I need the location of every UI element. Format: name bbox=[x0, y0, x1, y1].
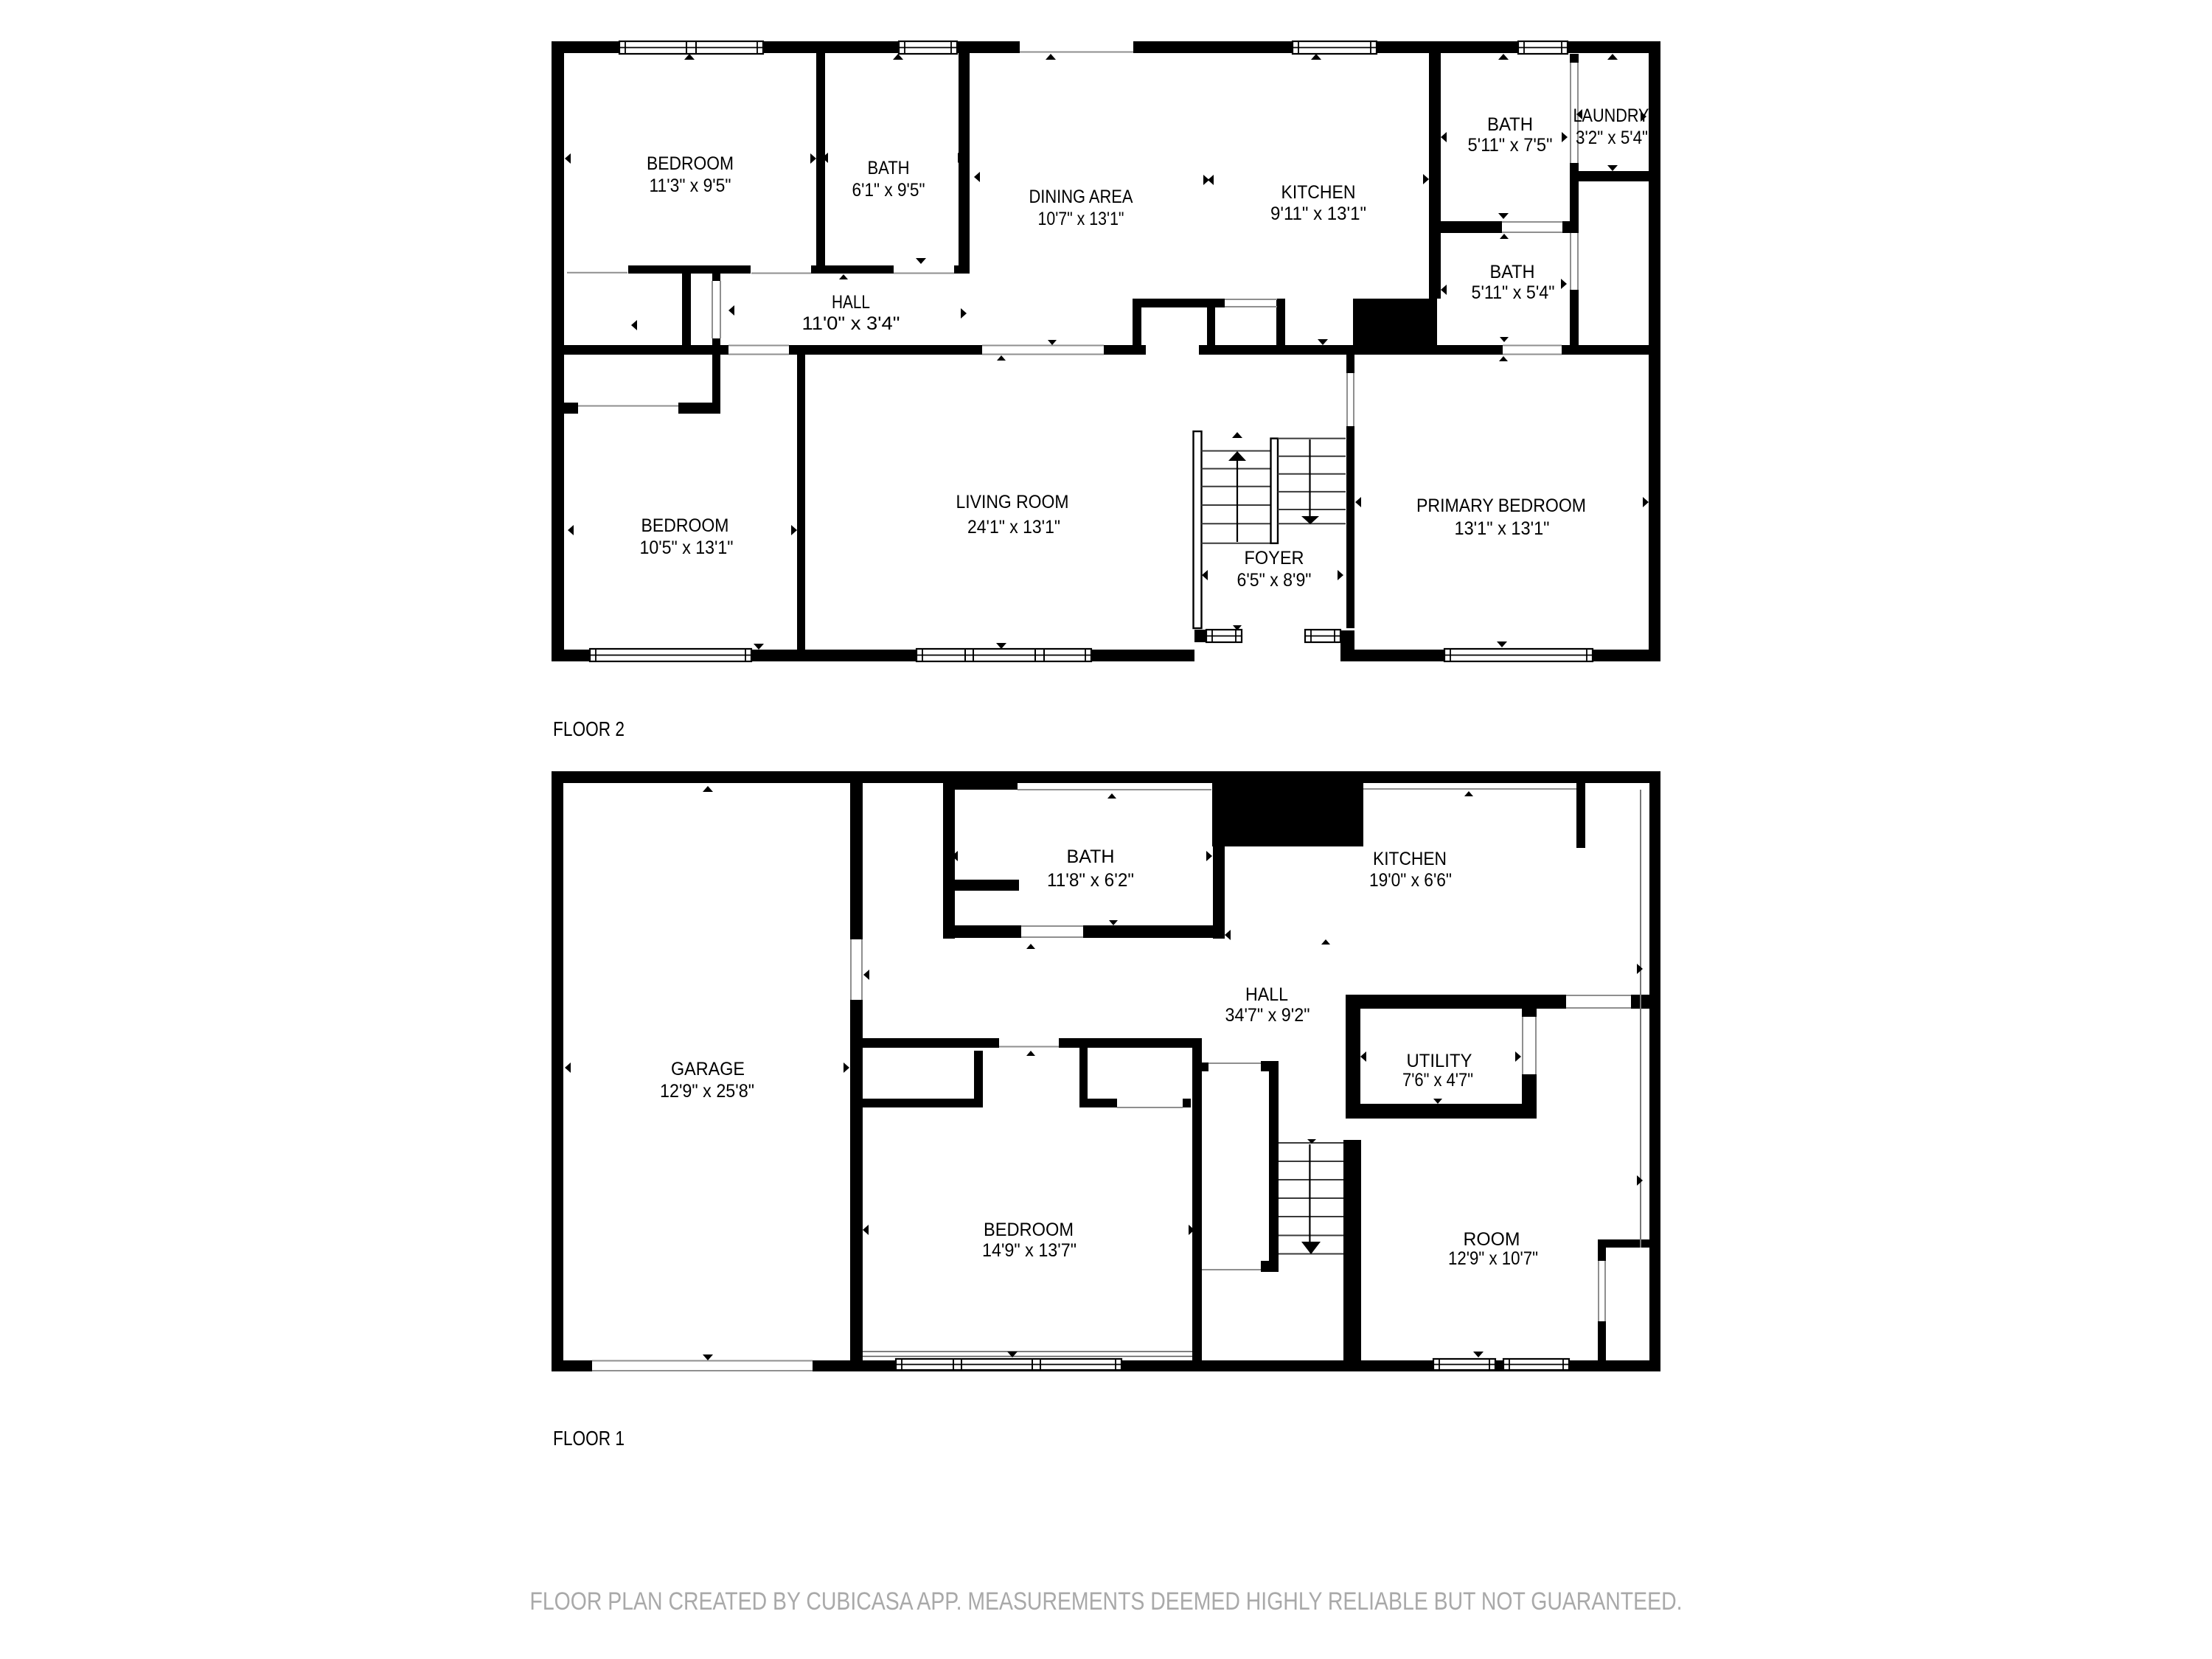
svg-text:5'11" x 7'5": 5'11" x 7'5" bbox=[1468, 135, 1553, 156]
svg-text:BATH: BATH bbox=[1067, 846, 1115, 867]
svg-text:PRIMARY BEDROOM: PRIMARY BEDROOM bbox=[1416, 495, 1586, 516]
svg-text:HALL: HALL bbox=[1245, 984, 1288, 1005]
svg-text:UTILITY: UTILITY bbox=[1407, 1051, 1472, 1071]
svg-text:ROOM: ROOM bbox=[1464, 1229, 1520, 1250]
svg-text:FLOOR PLAN CREATED BY CUBICASA: FLOOR PLAN CREATED BY CUBICASA APP. MEAS… bbox=[530, 1587, 1683, 1615]
svg-text:3'2" x 5'4": 3'2" x 5'4" bbox=[1576, 128, 1648, 148]
svg-text:13'1" x 13'1": 13'1" x 13'1" bbox=[1455, 518, 1550, 539]
svg-text:11'8" x 6'2": 11'8" x 6'2" bbox=[1047, 870, 1134, 891]
svg-text:11'3" x 9'5": 11'3" x 9'5" bbox=[650, 175, 731, 196]
svg-text:6'5" x 8'9": 6'5" x 8'9" bbox=[1237, 570, 1312, 591]
svg-text:7'6" x 4'7": 7'6" x 4'7" bbox=[1402, 1070, 1473, 1091]
svg-text:LAUNDRY: LAUNDRY bbox=[1573, 105, 1649, 126]
svg-text:24'1" x 13'1": 24'1" x 13'1" bbox=[967, 517, 1060, 538]
svg-text:10'5" x 13'1": 10'5" x 13'1" bbox=[640, 538, 734, 558]
svg-text:FLOOR 2: FLOOR 2 bbox=[553, 717, 625, 740]
svg-text:GARAGE: GARAGE bbox=[671, 1059, 745, 1079]
svg-text:BEDROOM: BEDROOM bbox=[984, 1220, 1074, 1240]
svg-text:BATH: BATH bbox=[868, 158, 910, 178]
svg-text:19'0" x 6'6": 19'0" x 6'6" bbox=[1369, 870, 1452, 891]
svg-text:6'1" x 9'5": 6'1" x 9'5" bbox=[852, 180, 925, 201]
svg-text:BEDROOM: BEDROOM bbox=[647, 153, 734, 174]
svg-text:BATH: BATH bbox=[1490, 262, 1535, 282]
svg-text:10'7" x 13'1": 10'7" x 13'1" bbox=[1038, 209, 1124, 229]
svg-text:DINING AREA: DINING AREA bbox=[1029, 187, 1133, 207]
svg-text:34'7" x 9'2": 34'7" x 9'2" bbox=[1225, 1005, 1310, 1026]
svg-text:BEDROOM: BEDROOM bbox=[641, 515, 729, 536]
svg-text:9'11" x 13'1": 9'11" x 13'1" bbox=[1270, 204, 1366, 224]
svg-text:FOYER: FOYER bbox=[1245, 548, 1304, 568]
svg-text:BATH: BATH bbox=[1487, 114, 1533, 135]
svg-text:KITCHEN: KITCHEN bbox=[1281, 182, 1356, 203]
svg-text:5'11" x 5'4": 5'11" x 5'4" bbox=[1472, 282, 1555, 303]
svg-text:12'9" x 25'8": 12'9" x 25'8" bbox=[660, 1081, 754, 1102]
svg-text:12'9" x 10'7": 12'9" x 10'7" bbox=[1448, 1248, 1538, 1269]
svg-text:11'0" x 3'4": 11'0" x 3'4" bbox=[802, 313, 900, 334]
svg-text:14'9" x 13'7": 14'9" x 13'7" bbox=[982, 1240, 1077, 1261]
svg-text:KITCHEN: KITCHEN bbox=[1373, 849, 1447, 869]
svg-text:LIVING ROOM: LIVING ROOM bbox=[956, 492, 1069, 512]
svg-text:FLOOR 1: FLOOR 1 bbox=[553, 1427, 625, 1450]
svg-text:HALL: HALL bbox=[832, 292, 870, 313]
